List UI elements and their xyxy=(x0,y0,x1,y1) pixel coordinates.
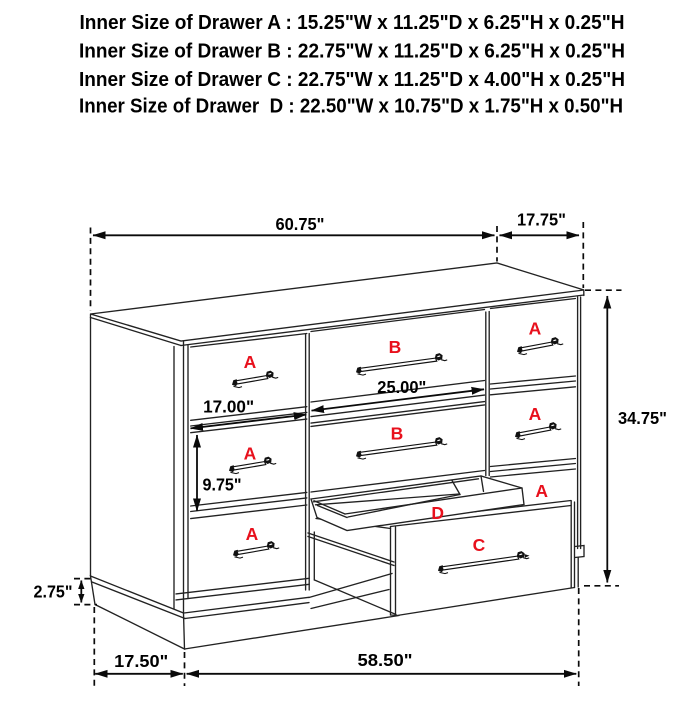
svg-text:A: A xyxy=(529,404,542,424)
svg-text:34.75": 34.75" xyxy=(618,408,667,428)
svg-text:B: B xyxy=(389,337,402,357)
svg-text:A: A xyxy=(246,524,259,544)
svg-text:A: A xyxy=(535,481,548,501)
svg-text:58.50": 58.50" xyxy=(358,650,413,670)
svg-text:B: B xyxy=(391,424,404,444)
svg-text:Inner Size of Drawer A : 15.25: Inner Size of Drawer A : 15.25"W x 11.25… xyxy=(80,11,625,34)
svg-text:25.00": 25.00" xyxy=(377,377,426,397)
svg-text:60.75": 60.75" xyxy=(276,214,325,234)
svg-text:9.75": 9.75" xyxy=(203,475,242,495)
svg-text:A: A xyxy=(529,318,542,338)
svg-text:A: A xyxy=(244,444,257,464)
svg-text:A: A xyxy=(244,352,257,372)
svg-text:17.50": 17.50" xyxy=(114,651,168,671)
svg-text:Inner Size of Drawer B : 22.75: Inner Size of Drawer B : 22.75"W x 11.25… xyxy=(79,40,625,63)
svg-text:C: C xyxy=(473,535,486,555)
svg-text:2.75": 2.75" xyxy=(34,582,73,602)
svg-text:Inner Size of Drawer D : 22.5: Inner Size of Drawer D : 22.50"W x 10.75… xyxy=(79,95,623,118)
svg-text:D: D xyxy=(431,503,444,523)
svg-text:17.00": 17.00" xyxy=(203,397,254,417)
svg-text:17.75": 17.75" xyxy=(517,209,566,229)
svg-text:Inner Size of Drawer C : 22.75: Inner Size of Drawer C : 22.75"W x 11.25… xyxy=(79,68,625,91)
